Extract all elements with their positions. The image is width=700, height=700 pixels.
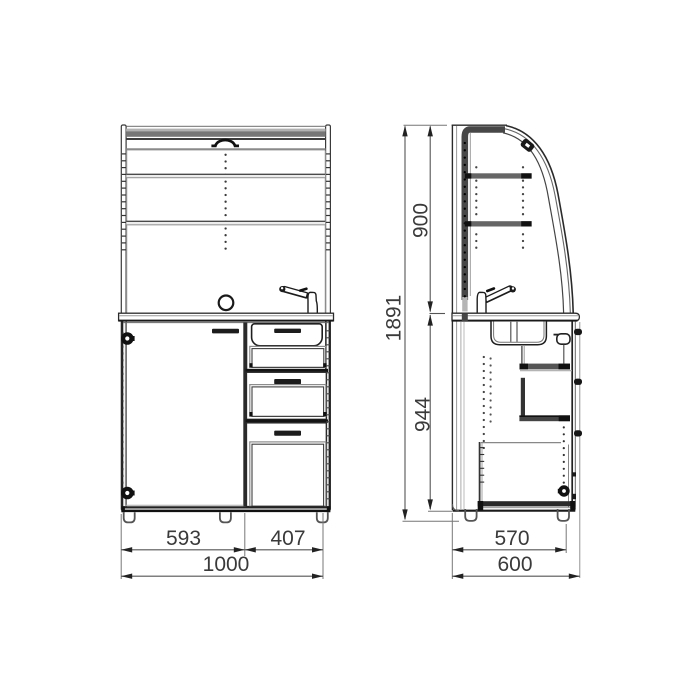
svg-text:593: 593	[166, 527, 201, 550]
svg-text:600: 600	[497, 553, 532, 576]
svg-text:407: 407	[270, 527, 305, 550]
svg-text:1000: 1000	[203, 553, 250, 576]
svg-text:1891: 1891	[382, 295, 405, 342]
svg-text:570: 570	[494, 527, 529, 550]
svg-text:944: 944	[412, 397, 435, 432]
svg-text:900: 900	[410, 203, 433, 238]
